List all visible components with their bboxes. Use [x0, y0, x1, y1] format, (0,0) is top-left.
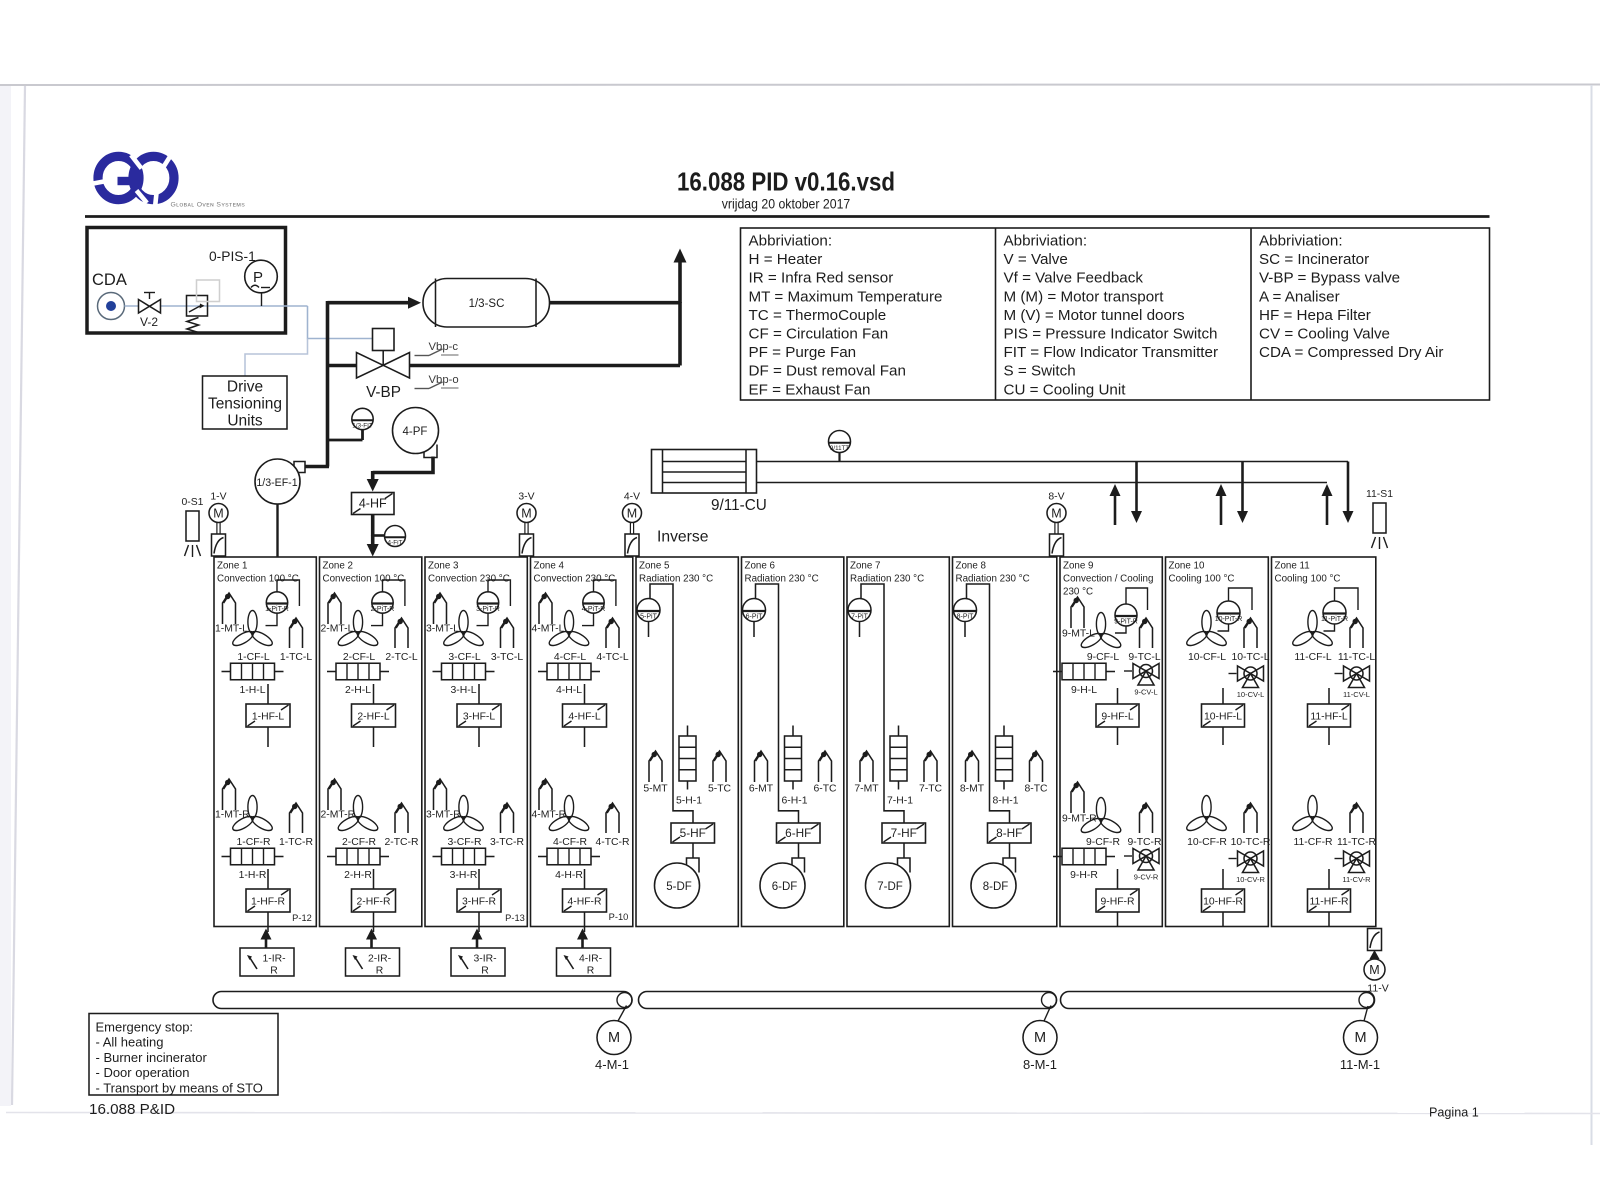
svg-text:Inverse: Inverse	[657, 529, 709, 546]
svg-text:M: M	[1051, 506, 1061, 520]
svg-text:V-BP: V-BP	[366, 384, 401, 401]
svg-text:Pagina 1: Pagina 1	[1429, 1106, 1479, 1120]
svg-text:11-HF-R: 11-HF-R	[1309, 897, 1349, 908]
svg-text:0-S1: 0-S1	[182, 497, 204, 508]
svg-text:1-IR-: 1-IR-	[262, 954, 285, 965]
svg-text:Abbriviation:: Abbriviation:	[1004, 233, 1088, 250]
svg-text:10-CF-L: 10-CF-L	[1188, 652, 1226, 663]
svg-text:SC = Incinerator: SC = Incinerator	[1259, 251, 1369, 268]
svg-text:2-H-L: 2-H-L	[345, 685, 371, 696]
svg-text:1-CF-L: 1-CF-L	[237, 652, 270, 663]
svg-text:5-TC: 5-TC	[708, 784, 732, 795]
svg-text:3-MT-R: 3-MT-R	[426, 810, 461, 821]
svg-text:7-DF: 7-DF	[877, 881, 903, 893]
svg-text:Drive: Drive	[227, 379, 263, 396]
svg-text:Vf = Valve Feedback: Vf = Valve Feedback	[1004, 270, 1144, 287]
svg-text:6-HF: 6-HF	[785, 826, 811, 840]
svg-text:4-CF-L: 4-CF-L	[554, 652, 587, 663]
svg-text:5-HF: 5-HF	[680, 826, 706, 840]
svg-text:7-HF: 7-HF	[891, 826, 917, 840]
svg-text:Tensioning: Tensioning	[208, 396, 282, 413]
svg-text:P-10: P-10	[609, 912, 629, 922]
svg-text:Cooling 100 °C: Cooling 100 °C	[1169, 574, 1235, 585]
svg-text:Zone 11: Zone 11	[1275, 561, 1310, 572]
svg-text:6-DF: 6-DF	[772, 881, 798, 893]
svg-text:1-CF-R: 1-CF-R	[236, 837, 271, 848]
svg-text:CV = Cooling Valve: CV = Cooling Valve	[1259, 326, 1390, 343]
svg-text:5-PiT: 5-PiT	[640, 614, 657, 621]
svg-text:3-V: 3-V	[518, 492, 534, 503]
svg-text:1-TC-R: 1-TC-R	[279, 837, 314, 848]
svg-text:3-H-R: 3-H-R	[450, 870, 478, 881]
svg-text:11-CF-R: 11-CF-R	[1293, 837, 1333, 848]
svg-text:2-TC-L: 2-TC-L	[385, 652, 418, 663]
svg-text:11-HF-L: 11-HF-L	[1310, 712, 1348, 723]
svg-text:5-MT: 5-MT	[643, 784, 668, 795]
svg-text:2-PiT-R: 2-PiT-R	[371, 606, 395, 613]
svg-text:Zone 4: Zone 4	[534, 561, 565, 572]
svg-text:1-V: 1-V	[210, 492, 226, 503]
svg-text:9-MT-L: 9-MT-L	[1062, 629, 1095, 640]
svg-text:10-PiT-R: 10-PiT-R	[1215, 616, 1243, 623]
svg-text:1-PiT-R: 1-PiT-R	[265, 606, 289, 613]
svg-text:5-H-1: 5-H-1	[676, 796, 702, 807]
svg-text:7-H-1: 7-H-1	[887, 796, 913, 807]
svg-text:9-CF-R: 9-CF-R	[1086, 837, 1121, 848]
svg-text:10-HF-R: 10-HF-R	[1203, 897, 1243, 908]
svg-text:CDA: CDA	[92, 271, 127, 289]
svg-text:9-TC-R: 9-TC-R	[1127, 837, 1162, 848]
svg-text:Zone 8: Zone 8	[956, 561, 987, 572]
svg-text:Zone 3: Zone 3	[428, 561, 459, 572]
svg-text:7-MT: 7-MT	[854, 784, 879, 795]
svg-text:9-CF-L: 9-CF-L	[1087, 652, 1120, 663]
svg-text:EF = Exhaust Fan: EF = Exhaust Fan	[749, 381, 871, 398]
svg-text:M: M	[1034, 1030, 1046, 1046]
svg-text:4-M-1: 4-M-1	[595, 1057, 629, 1072]
svg-text:Zone 5: Zone 5	[639, 561, 670, 572]
svg-text:Radiation 230 °C: Radiation 230 °C	[956, 574, 1030, 585]
svg-text:Radiation 230 °C: Radiation 230 °C	[639, 574, 713, 585]
svg-text:Radiation 230 °C: Radiation 230 °C	[850, 574, 924, 585]
svg-text:CDA = Compressed Dry Air: CDA = Compressed Dry Air	[1259, 344, 1443, 361]
svg-text:4-FiT: 4-FiT	[388, 540, 403, 547]
svg-text:8-PiT: 8-PiT	[957, 614, 974, 621]
svg-text:2-CF-L: 2-CF-L	[343, 652, 376, 663]
svg-text:1-HF-L: 1-HF-L	[252, 712, 285, 723]
svg-text:Abbriviation:: Abbriviation:	[1259, 233, 1343, 250]
svg-text:4-H-R: 4-H-R	[555, 870, 583, 881]
svg-text:8-MT: 8-MT	[960, 784, 985, 795]
svg-text:8-TC: 8-TC	[1024, 784, 1048, 795]
svg-text:9-HF-R: 9-HF-R	[1100, 897, 1135, 908]
svg-text:R: R	[587, 966, 595, 977]
svg-text:DF = Dust removal Fan: DF = Dust removal Fan	[749, 363, 906, 380]
svg-text:1-TC-L: 1-TC-L	[280, 652, 313, 663]
svg-text:4-V: 4-V	[624, 492, 640, 503]
svg-text:Zone 10: Zone 10	[1169, 561, 1206, 572]
svg-text:A = Analiser: A = Analiser	[1259, 288, 1340, 305]
svg-text:6-MT: 6-MT	[749, 784, 774, 795]
svg-text:11-CV-L: 11-CV-L	[1343, 690, 1370, 699]
svg-text:CU = Cooling Unit: CU = Cooling Unit	[1004, 381, 1127, 398]
svg-text:TC = ThermoCouple: TC = ThermoCouple	[749, 307, 887, 324]
svg-text:11-TC-R: 11-TC-R	[1337, 837, 1377, 848]
svg-text:M (M) = Motor transport: M (M) = Motor transport	[1004, 288, 1165, 305]
svg-text:CF = Circulation Fan: CF = Circulation Fan	[749, 326, 889, 343]
svg-text:1/3-EF-1: 1/3-EF-1	[256, 477, 297, 489]
svg-text:8-HF: 8-HF	[996, 826, 1022, 840]
svg-text:10-TC-R: 10-TC-R	[1231, 837, 1271, 848]
svg-text:9-CV-R: 9-CV-R	[1134, 873, 1159, 882]
svg-text:11-TC-L: 11-TC-L	[1338, 652, 1376, 663]
svg-text:R: R	[376, 966, 384, 977]
svg-text:M: M	[1354, 1030, 1366, 1046]
svg-text:Zone 6: Zone 6	[745, 561, 776, 572]
svg-text:3-HF-R: 3-HF-R	[462, 897, 497, 908]
svg-text:1-HF-R: 1-HF-R	[251, 897, 286, 908]
svg-text:4-TC-L: 4-TC-L	[596, 652, 629, 663]
svg-text:IR = Infra Red sensor: IR = Infra Red sensor	[749, 270, 894, 287]
svg-text:8-H-1: 8-H-1	[993, 796, 1019, 807]
svg-text:V-2: V-2	[140, 315, 158, 329]
svg-text:R: R	[270, 966, 278, 977]
svg-text:- All heating: - All heating	[96, 1035, 164, 1050]
svg-text:Zone 1: Zone 1	[217, 561, 248, 572]
svg-text:M: M	[213, 506, 223, 520]
svg-text:Emergency stop:: Emergency stop:	[96, 1020, 194, 1035]
svg-text:Convection 230 °C: Convection 230 °C	[428, 574, 510, 585]
svg-text:4-HF: 4-HF	[359, 497, 387, 511]
svg-text:10-CV-L: 10-CV-L	[1237, 690, 1265, 699]
svg-text:7-PiT: 7-PiT	[851, 614, 868, 621]
svg-text:Abbriviation:: Abbriviation:	[749, 233, 833, 250]
svg-text:Cooling 100 °C: Cooling 100 °C	[1275, 574, 1341, 585]
svg-text:PIS = Pressure Indicator Switc: PIS = Pressure Indicator Switch	[1004, 326, 1218, 343]
svg-text:3-IR-: 3-IR-	[473, 954, 496, 965]
svg-text:4-H-L: 4-H-L	[556, 685, 582, 696]
svg-text:16.088 P&ID: 16.088 P&ID	[89, 1101, 175, 1118]
svg-text:230 °C: 230 °C	[1063, 587, 1093, 598]
svg-text:10-HF-L: 10-HF-L	[1204, 712, 1242, 723]
svg-text:2-TC-R: 2-TC-R	[384, 837, 419, 848]
svg-text:Vbp-o: Vbp-o	[429, 374, 459, 386]
svg-text:1-H-L: 1-H-L	[240, 685, 266, 696]
svg-text:3-TC-R: 3-TC-R	[490, 837, 525, 848]
svg-text:8-DF: 8-DF	[983, 881, 1009, 893]
svg-text:9-H-R: 9-H-R	[1070, 870, 1098, 881]
svg-text:6-H-1: 6-H-1	[782, 796, 808, 807]
svg-text:9/11-CU: 9/11-CU	[711, 497, 767, 514]
svg-text:10-TC-L: 10-TC-L	[1231, 652, 1269, 663]
svg-text:H = Heater: H = Heater	[749, 251, 823, 268]
svg-text:vrijdag 20 oktober 2017: vrijdag 20 oktober 2017	[722, 197, 851, 212]
svg-text:11-CF-L: 11-CF-L	[1294, 652, 1332, 663]
svg-text:4-TC-R: 4-TC-R	[595, 837, 630, 848]
svg-text:1/3-SC: 1/3-SC	[469, 298, 505, 310]
svg-text:2-H-R: 2-H-R	[344, 870, 372, 881]
svg-text:2-HF-R: 2-HF-R	[356, 897, 391, 908]
svg-text:Zone 7: Zone 7	[850, 561, 881, 572]
svg-text:Zone 2: Zone 2	[323, 561, 354, 572]
svg-text:11-M-1: 11-M-1	[1340, 1057, 1380, 1072]
svg-text:3-H-L: 3-H-L	[451, 685, 477, 696]
svg-text:1-MT-R: 1-MT-R	[215, 810, 250, 821]
svg-text:9-PiT-R: 9-PiT-R	[1114, 619, 1138, 626]
svg-text:16.088 PID v0.16.vsd: 16.088 PID v0.16.vsd	[677, 167, 895, 197]
svg-text:10-CF-R: 10-CF-R	[1187, 837, 1227, 848]
svg-text:7-TC: 7-TC	[919, 784, 943, 795]
svg-text:4-PiT-R: 4-PiT-R	[582, 606, 606, 613]
svg-text:V-BP = Bypass valve: V-BP = Bypass valve	[1259, 270, 1400, 287]
svg-text:Zone 9: Zone 9	[1063, 561, 1094, 572]
svg-text:Convection 100 °C: Convection 100 °C	[217, 574, 299, 585]
svg-text:4-CF-R: 4-CF-R	[553, 837, 588, 848]
svg-text:HF = Hepa Filter: HF = Hepa Filter	[1259, 307, 1371, 324]
svg-text:Vbp-c: Vbp-c	[429, 341, 459, 353]
svg-text:MT = Maximum Temperature: MT = Maximum Temperature	[749, 288, 943, 305]
svg-text:Radiation 230 °C: Radiation 230 °C	[745, 574, 819, 585]
svg-text:1-H-R: 1-H-R	[239, 870, 267, 881]
svg-text:M: M	[521, 506, 531, 520]
svg-text:M: M	[627, 506, 637, 520]
svg-text:4-PF: 4-PF	[403, 426, 428, 438]
svg-text:3-TC-L: 3-TC-L	[491, 652, 524, 663]
svg-text:2-HF-L: 2-HF-L	[357, 712, 390, 723]
svg-text:9/11TT: 9/11TT	[830, 445, 849, 452]
svg-text:PF = Purge Fan: PF = Purge Fan	[749, 344, 857, 361]
svg-text:9-HF-L: 9-HF-L	[1101, 712, 1134, 723]
svg-text:4-HF-R: 4-HF-R	[567, 897, 602, 908]
svg-text:0-PIS-1: 0-PIS-1	[209, 249, 256, 264]
svg-text:2-CF-R: 2-CF-R	[342, 837, 377, 848]
svg-text:11-PiT-R: 11-PiT-R	[1321, 616, 1348, 623]
svg-text:P-13: P-13	[505, 913, 525, 923]
svg-text:R: R	[481, 966, 489, 977]
svg-text:9-MT-R: 9-MT-R	[1062, 814, 1097, 825]
svg-text:S = Switch: S = Switch	[1004, 363, 1076, 380]
svg-text:4-HF-L: 4-HF-L	[568, 712, 601, 723]
svg-text:8-M-1: 8-M-1	[1023, 1057, 1057, 1072]
svg-text:9-H-L: 9-H-L	[1071, 685, 1097, 696]
svg-text:P: P	[253, 269, 263, 286]
svg-text:2-IR-: 2-IR-	[368, 954, 391, 965]
svg-text:- Door operation: - Door operation	[96, 1065, 190, 1080]
svg-text:11-S1: 11-S1	[1366, 489, 1393, 500]
svg-text:M (V) = Motor tunnel doors: M (V) = Motor tunnel doors	[1004, 307, 1185, 324]
svg-text:Convection / Cooling: Convection / Cooling	[1063, 574, 1153, 585]
svg-text:4-MT-R: 4-MT-R	[532, 810, 567, 821]
svg-text:9-CV-L: 9-CV-L	[1134, 688, 1157, 697]
svg-text:4-IR-: 4-IR-	[579, 954, 602, 965]
svg-text:10-CV-R: 10-CV-R	[1236, 875, 1265, 884]
svg-text:3-PiT-R: 3-PiT-R	[476, 606, 500, 613]
svg-text:3-HF-L: 3-HF-L	[463, 712, 496, 723]
svg-text:M: M	[608, 1030, 620, 1046]
svg-text:3-CF-R: 3-CF-R	[447, 837, 482, 848]
svg-text:5-DF: 5-DF	[666, 881, 692, 893]
svg-text:- Burner incinerator: - Burner incinerator	[96, 1050, 208, 1065]
svg-text:8-V: 8-V	[1048, 492, 1064, 503]
svg-text:11-CV-R: 11-CV-R	[1342, 875, 1371, 884]
svg-text:1/3-FIT: 1/3-FIT	[352, 423, 373, 430]
svg-text:FIT = Flow Indicator Transmitt: FIT = Flow Indicator Transmitter	[1004, 344, 1219, 361]
svg-text:P-12: P-12	[292, 913, 312, 923]
svg-text:M: M	[1369, 963, 1379, 977]
svg-text:Convection 100 °C: Convection 100 °C	[323, 574, 405, 585]
svg-text:9-TC-L: 9-TC-L	[1128, 652, 1161, 663]
svg-text:6-PiT: 6-PiT	[746, 614, 763, 621]
svg-text:Convection 230 °C: Convection 230 °C	[534, 574, 616, 585]
svg-text:6-TC: 6-TC	[813, 784, 837, 795]
svg-text:Units: Units	[227, 413, 263, 430]
svg-text:V = Valve: V = Valve	[1004, 251, 1068, 268]
svg-text:2-MT-R: 2-MT-R	[321, 810, 356, 821]
svg-text:3-CF-L: 3-CF-L	[448, 652, 481, 663]
svg-text:- Transport by means of STO: - Transport by means of STO	[96, 1080, 263, 1095]
svg-text:Gʟᴏʙᴀʟ Oᴠᴇɴ Sʏѕᴛᴇᴍѕ: Gʟᴏʙᴀʟ Oᴠᴇɴ Sʏѕᴛᴇᴍѕ	[171, 202, 246, 209]
